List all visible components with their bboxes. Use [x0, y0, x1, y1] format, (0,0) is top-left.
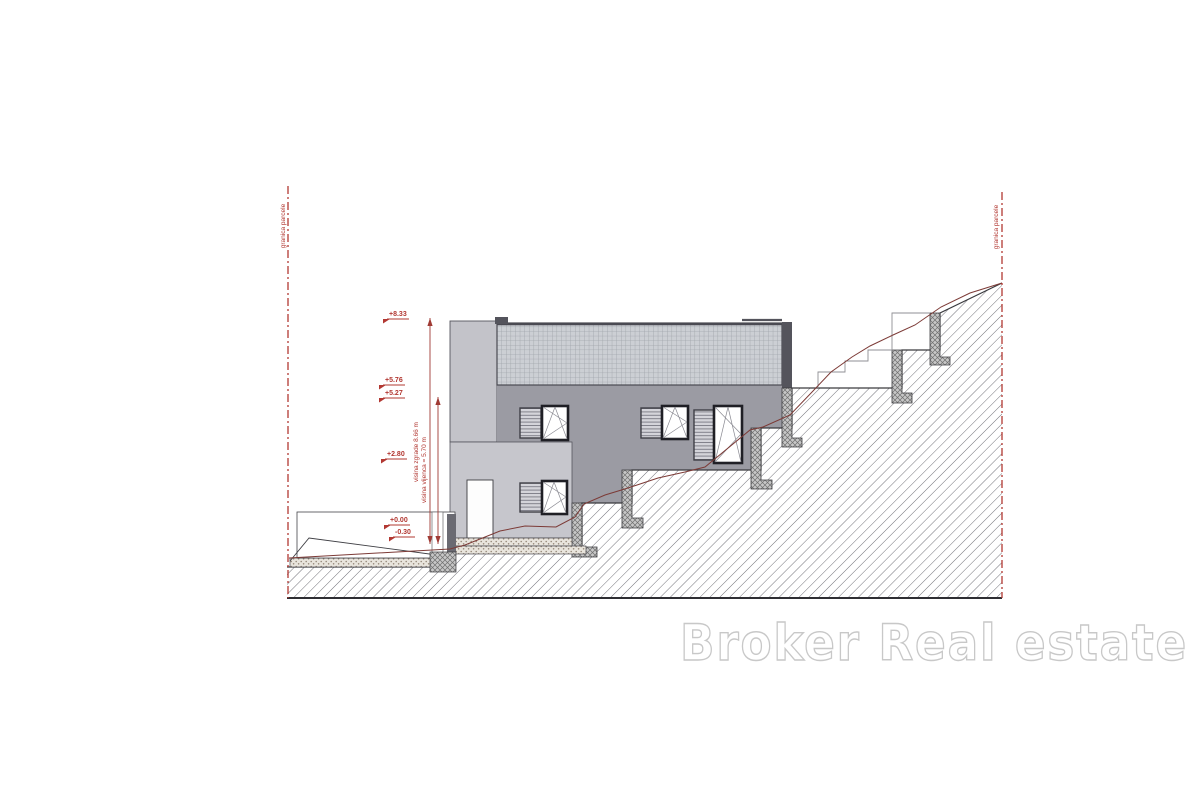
- level-flag-icon: [383, 319, 390, 324]
- watermark-text: Broker Real estate: [680, 614, 1188, 672]
- elevation-mark: +5.76: [379, 377, 405, 390]
- cross-section-elevation-drawing: granica parcele granica parcele visina z…: [0, 0, 1200, 800]
- boundary-label: granica parcele: [993, 204, 1000, 249]
- window-shutter: [520, 408, 541, 438]
- window-pane: [542, 406, 568, 440]
- window-shutter: [694, 410, 714, 460]
- eaves-height-label: visina vijenca = 5.70 m: [421, 437, 428, 503]
- window-shutter: [641, 408, 662, 438]
- pool-end-wall: [432, 512, 443, 558]
- elevation-mark: +2.80: [381, 451, 407, 464]
- building-left-tower: [450, 321, 497, 442]
- window-pane: [714, 406, 742, 463]
- arrowhead: [427, 318, 432, 326]
- level-flag-icon: [379, 385, 386, 390]
- window-upper-3-balcony-door: [694, 406, 742, 463]
- arrowhead: [435, 397, 440, 405]
- foundation-wall-bar: [447, 514, 456, 558]
- window-shutter: [520, 483, 542, 512]
- elevation-value: +0.00: [390, 517, 408, 524]
- level-flag-icon: [381, 459, 388, 464]
- elevation-value: +5.76: [385, 377, 403, 384]
- elevation-value: +8.33: [389, 311, 407, 318]
- roof-slab: [497, 323, 782, 385]
- elevation-mark: +8.33: [383, 311, 409, 324]
- elevation-value: +2.80: [387, 451, 405, 458]
- right-parapet-wall: [782, 322, 792, 388]
- entrance-door: [467, 480, 493, 538]
- pool-basin: [297, 512, 455, 558]
- site-section-svg: granica parcele granica parcele visina z…: [0, 0, 1200, 800]
- elevation-value: -0.30: [395, 529, 411, 536]
- height-dimensions: visina zgrade 8.66 m visina vijenca = 5.…: [413, 318, 441, 544]
- boundary-label: granica parcele: [280, 203, 287, 248]
- elevation-mark: +5.27: [379, 390, 405, 403]
- window-upper-1: [520, 406, 568, 440]
- foundation-slab: [452, 546, 586, 554]
- floor-slab: [450, 538, 572, 546]
- roof-left-tab: [495, 317, 508, 324]
- level-flag-icon: [379, 398, 386, 403]
- window-lower-1: [520, 481, 567, 514]
- window-pane: [662, 406, 688, 439]
- window-pane: [542, 481, 567, 514]
- elevation-marks: +8.33 +5.76 +5.27 +2.80 +0.00 -0.30: [379, 311, 415, 542]
- elevation-value: +5.27: [385, 390, 403, 397]
- parcel-boundary-left: granica parcele: [280, 186, 288, 598]
- window-upper-2: [641, 406, 688, 439]
- footing-block: [430, 552, 456, 572]
- building-height-label: visina zgrade 8.66 m: [413, 422, 420, 482]
